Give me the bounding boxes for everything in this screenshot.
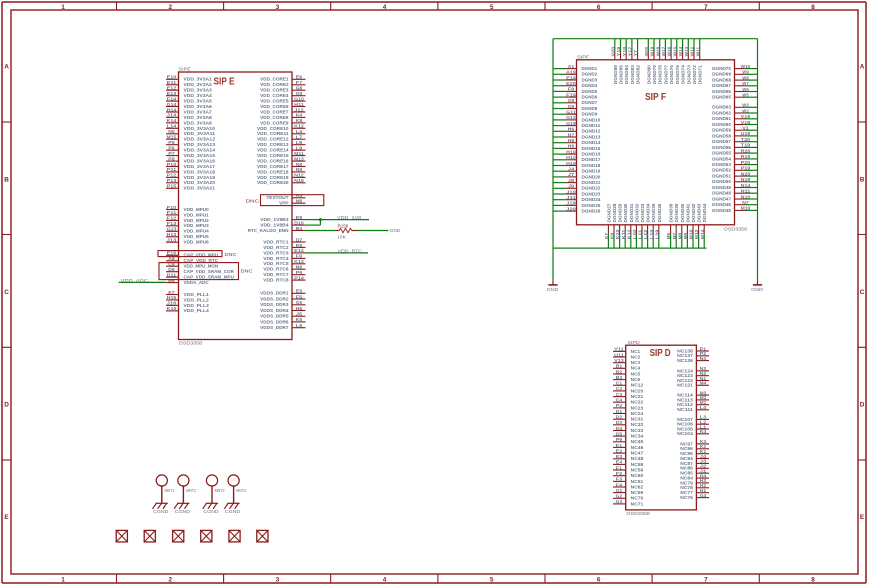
svg-text:VDD_CORE11: VDD_CORE11 bbox=[257, 131, 289, 136]
svg-text:VDD_3V3A5: VDD_3V3A5 bbox=[184, 99, 213, 104]
svg-text:C1: C1 bbox=[616, 381, 623, 386]
svg-text:DGND13: DGND13 bbox=[582, 134, 601, 139]
svg-text:DGND33: DGND33 bbox=[640, 203, 645, 222]
svg-text:G3: G3 bbox=[616, 499, 623, 504]
svg-text:VDD_3V3A18: VDD_3V3A18 bbox=[184, 169, 216, 174]
svg-text:W7: W7 bbox=[742, 81, 749, 86]
svg-text:J5: J5 bbox=[296, 312, 303, 317]
svg-text:V20: V20 bbox=[610, 46, 615, 56]
svg-text:T20: T20 bbox=[741, 137, 751, 142]
svg-text:M8: M8 bbox=[677, 232, 682, 239]
svg-text:VDD_MPU_MON: VDD_MPU_MON bbox=[184, 264, 219, 269]
svg-text:E11: E11 bbox=[167, 80, 177, 85]
svg-text:NC32: NC32 bbox=[631, 422, 644, 427]
svg-text:DGND41: DGND41 bbox=[685, 203, 690, 222]
svg-text:A3: A3 bbox=[296, 193, 303, 198]
svg-text:L14: L14 bbox=[167, 124, 177, 129]
svg-text:V18: V18 bbox=[741, 120, 751, 125]
svg-text:H6: H6 bbox=[568, 127, 575, 132]
svg-text:V11: V11 bbox=[614, 347, 624, 352]
svg-text:VDD_CORE8: VDD_CORE8 bbox=[260, 115, 289, 120]
svg-text:H19: H19 bbox=[566, 161, 576, 166]
svg-text:DGND2: DGND2 bbox=[582, 72, 598, 77]
svg-text:L13: L13 bbox=[649, 229, 654, 239]
svg-text:F10: F10 bbox=[167, 205, 177, 210]
svg-text:N15: N15 bbox=[294, 178, 304, 183]
svg-text:W19: W19 bbox=[650, 46, 655, 56]
svg-text:VDD_CORE17: VDD_CORE17 bbox=[257, 164, 289, 169]
svg-text:VDD_3V3A4: VDD_3V3A4 bbox=[184, 93, 213, 98]
svg-text:L11: L11 bbox=[638, 229, 643, 239]
svg-text:DGND4: DGND4 bbox=[582, 83, 598, 88]
svg-text:J20: J20 bbox=[566, 206, 577, 211]
svg-text:CGND: CGND bbox=[153, 509, 169, 514]
svg-text:G19: G19 bbox=[566, 121, 576, 126]
svg-text:N7: N7 bbox=[742, 200, 749, 205]
svg-text:DGND40: DGND40 bbox=[680, 203, 685, 222]
svg-text:VDD_3V3A19: VDD_3V3A19 bbox=[184, 175, 216, 180]
svg-text:DGND17: DGND17 bbox=[582, 157, 601, 162]
svg-text:M14: M14 bbox=[700, 229, 705, 239]
svg-text:DGND5: DGND5 bbox=[582, 89, 598, 94]
svg-text:VDDS_DDR3: VDDS_DDR3 bbox=[260, 302, 289, 307]
svg-text:D5: D5 bbox=[616, 431, 623, 436]
svg-text:VDD_3V3A17: VDD_3V3A17 bbox=[184, 164, 216, 169]
svg-text:5: 5 bbox=[490, 577, 494, 584]
svg-text:L4: L4 bbox=[700, 405, 707, 410]
svg-text:VDD_MPU5: VDD_MPU5 bbox=[184, 234, 210, 239]
svg-text:DGND58: DGND58 bbox=[712, 133, 731, 138]
svg-text:V13: V13 bbox=[614, 358, 624, 363]
svg-text:H8: H8 bbox=[568, 138, 575, 143]
svg-text:10K: 10K bbox=[337, 235, 347, 240]
svg-text:DGND21: DGND21 bbox=[582, 180, 601, 185]
svg-text:8: 8 bbox=[811, 4, 815, 11]
svg-text:MNT4: MNT4 bbox=[236, 488, 246, 493]
svg-text:K8: K8 bbox=[296, 118, 303, 123]
svg-text:M6: M6 bbox=[666, 232, 671, 239]
svg-text:NC104: NC104 bbox=[677, 431, 693, 436]
svg-text:H11: H11 bbox=[294, 102, 304, 107]
svg-text:G1: G1 bbox=[616, 488, 623, 493]
svg-text:H14: H14 bbox=[167, 107, 177, 112]
svg-text:DGND50: DGND50 bbox=[712, 179, 731, 184]
svg-text:VDD_3V3A15: VDD_3V3A15 bbox=[184, 153, 216, 158]
svg-text:VDD_CORE10: VDD_CORE10 bbox=[257, 126, 289, 131]
svg-text:2: 2 bbox=[169, 577, 173, 584]
svg-text:DGND56: DGND56 bbox=[712, 145, 731, 150]
svg-text:K4: K4 bbox=[700, 429, 707, 434]
svg-text:CGND: CGND bbox=[225, 509, 241, 514]
svg-text:NC58: NC58 bbox=[631, 462, 644, 467]
svg-text:K12: K12 bbox=[294, 124, 304, 129]
svg-text:M19: M19 bbox=[741, 206, 751, 211]
svg-text:DGND1: DGND1 bbox=[582, 66, 598, 71]
svg-text:NC1: NC1 bbox=[631, 349, 641, 354]
svg-text:VDD_CORE7: VDD_CORE7 bbox=[260, 109, 289, 114]
svg-text:N9: N9 bbox=[296, 167, 303, 172]
svg-text:E19: E19 bbox=[566, 75, 576, 80]
svg-text:DGND6: DGND6 bbox=[582, 95, 598, 100]
svg-text:VDD_CORE19: VDD_CORE19 bbox=[257, 175, 289, 180]
svg-text:G10: G10 bbox=[294, 96, 304, 101]
svg-text:K7: K7 bbox=[604, 232, 609, 239]
svg-text:E2: E2 bbox=[616, 448, 623, 453]
svg-text:NC121: NC121 bbox=[677, 383, 693, 388]
svg-text:D7: D7 bbox=[296, 237, 303, 242]
svg-text:VDD_3V3A11: VDD_3V3A11 bbox=[184, 131, 216, 136]
svg-text:G13: G13 bbox=[167, 227, 177, 232]
svg-text:P9: P9 bbox=[296, 270, 303, 275]
svg-text:VDD_CORE18: VDD_CORE18 bbox=[257, 169, 289, 174]
svg-text:DGND60: DGND60 bbox=[712, 122, 731, 127]
svg-text:DGND78: DGND78 bbox=[658, 65, 663, 84]
svg-text:6: 6 bbox=[597, 4, 601, 11]
svg-text:A: A bbox=[860, 64, 865, 71]
svg-text:VDD_RTC1: VDD_RTC1 bbox=[263, 239, 289, 244]
svg-text:F12: F12 bbox=[167, 216, 177, 221]
svg-text:VDD_CORE9: VDD_CORE9 bbox=[260, 120, 289, 125]
svg-text:DNC: DNC bbox=[225, 252, 238, 257]
svg-text:DGND88: DGND88 bbox=[613, 65, 618, 84]
svg-text:DGND30: DGND30 bbox=[623, 203, 628, 222]
svg-text:6: 6 bbox=[597, 577, 601, 584]
svg-text:DGND38: DGND38 bbox=[669, 203, 674, 222]
svg-text:M10: M10 bbox=[689, 229, 694, 239]
svg-text:VDD_1V8B4: VDD_1V8B4 bbox=[260, 223, 289, 228]
svg-text:J4: J4 bbox=[568, 167, 575, 172]
svg-text:DGND7: DGND7 bbox=[582, 100, 598, 105]
svg-text:DGND39: DGND39 bbox=[674, 203, 679, 222]
svg-text:CGND: CGND bbox=[203, 509, 219, 514]
svg-text:VDD_RTC5: VDD_RTC5 bbox=[263, 261, 289, 266]
svg-text:CAP_VDD_SRAM_MPU: CAP_VDD_SRAM_MPU bbox=[184, 275, 234, 280]
svg-text:H10: H10 bbox=[566, 149, 576, 154]
svg-text:G8: G8 bbox=[296, 86, 303, 91]
svg-text:U19: U19 bbox=[741, 131, 751, 136]
svg-text:MNT2: MNT2 bbox=[186, 488, 196, 493]
svg-text:VDD_3V3A7: VDD_3V3A7 bbox=[184, 109, 213, 114]
svg-text:NC31: NC31 bbox=[631, 417, 644, 422]
svg-text:VDD_CORE6: VDD_CORE6 bbox=[260, 104, 289, 109]
svg-text:K15: K15 bbox=[167, 306, 177, 311]
svg-text:MNT1: MNT1 bbox=[165, 488, 175, 493]
svg-text:DGND26: DGND26 bbox=[582, 209, 601, 214]
svg-text:VDD_MPU4: VDD_MPU4 bbox=[184, 229, 210, 234]
svg-text:VDD_3V3A21: VDD_3V3A21 bbox=[184, 186, 216, 191]
svg-text:VDD_MPU6: VDD_MPU6 bbox=[184, 240, 210, 245]
svg-text:G12: G12 bbox=[566, 115, 576, 120]
svg-text:VPP: VPP bbox=[279, 201, 288, 206]
svg-text:E15: E15 bbox=[167, 251, 177, 256]
svg-text:E9: E9 bbox=[296, 215, 303, 220]
svg-text:GND: GND bbox=[751, 287, 764, 292]
svg-text:J10: J10 bbox=[566, 189, 577, 194]
svg-text:VDD_3V3A8: VDD_3V3A8 bbox=[184, 115, 213, 120]
svg-text:SIPE: SIPE bbox=[179, 67, 191, 72]
svg-text:7: 7 bbox=[704, 4, 708, 11]
svg-text:L5: L5 bbox=[296, 323, 303, 328]
svg-text:D9: D9 bbox=[168, 267, 175, 272]
svg-text:J19: J19 bbox=[566, 201, 577, 206]
svg-text:M11: M11 bbox=[294, 151, 304, 156]
svg-text:E10: E10 bbox=[167, 75, 177, 80]
svg-text:G2: G2 bbox=[616, 494, 623, 499]
svg-text:F4: F4 bbox=[616, 482, 623, 487]
svg-text:W8: W8 bbox=[742, 75, 749, 80]
svg-text:E20: E20 bbox=[566, 81, 576, 86]
svg-text:NC60: NC60 bbox=[631, 473, 644, 478]
svg-text:7: 7 bbox=[704, 577, 708, 584]
svg-text:E6: E6 bbox=[296, 75, 303, 80]
svg-text:VDD_3V3A2: VDD_3V3A2 bbox=[184, 82, 213, 87]
svg-text:C: C bbox=[860, 289, 865, 296]
svg-text:NC3: NC3 bbox=[631, 360, 641, 365]
svg-text:P2: P2 bbox=[616, 403, 623, 408]
svg-text:DGND24: DGND24 bbox=[582, 197, 601, 202]
svg-text:DGND54: DGND54 bbox=[712, 156, 731, 161]
svg-text:C3: C3 bbox=[616, 392, 623, 397]
svg-text:VDD_MPU1: VDD_MPU1 bbox=[184, 212, 210, 217]
svg-text:NC24: NC24 bbox=[631, 411, 644, 416]
svg-text:L4: L4 bbox=[296, 129, 303, 134]
svg-text:K10: K10 bbox=[615, 229, 620, 239]
svg-text:VDD_CORE12: VDD_CORE12 bbox=[257, 137, 289, 142]
svg-text:VDD_CORE13: VDD_CORE13 bbox=[257, 142, 289, 147]
svg-text:E5: E5 bbox=[296, 289, 303, 294]
svg-text:W20: W20 bbox=[644, 46, 649, 56]
svg-text:NC23: NC23 bbox=[631, 405, 644, 410]
svg-text:VDD_CORE3: VDD_CORE3 bbox=[260, 88, 289, 93]
svg-text:VDDS_DDR4: VDDS_DDR4 bbox=[260, 308, 289, 313]
svg-text:K13: K13 bbox=[294, 259, 304, 264]
svg-text:K12: K12 bbox=[626, 229, 631, 239]
svg-text:VDD_3V3A10: VDD_3V3A10 bbox=[184, 126, 216, 131]
svg-text:K8: K8 bbox=[610, 232, 615, 239]
svg-text:DGND82: DGND82 bbox=[636, 65, 641, 84]
svg-text:DGND53: DGND53 bbox=[712, 162, 731, 167]
svg-text:SIPD: SIPD bbox=[627, 340, 640, 345]
svg-text:NC46: NC46 bbox=[631, 445, 644, 450]
svg-text:VDDS_DDR1: VDDS_DDR1 bbox=[260, 291, 289, 296]
svg-text:DGND59: DGND59 bbox=[712, 128, 731, 133]
svg-text:L12: L12 bbox=[643, 229, 648, 239]
svg-text:F19: F19 bbox=[566, 92, 576, 97]
svg-text:F7: F7 bbox=[296, 80, 303, 85]
svg-text:W2: W2 bbox=[742, 108, 749, 113]
svg-text:P11: P11 bbox=[167, 167, 177, 172]
svg-text:P8: P8 bbox=[168, 156, 175, 161]
svg-text:NC111: NC111 bbox=[677, 407, 693, 412]
svg-text:L7: L7 bbox=[296, 135, 303, 140]
svg-text:B4: B4 bbox=[296, 226, 303, 231]
svg-text:U11: U11 bbox=[614, 352, 624, 357]
svg-text:DGND22: DGND22 bbox=[582, 186, 601, 191]
svg-text:CGND: CGND bbox=[175, 509, 191, 514]
svg-text:DGND79: DGND79 bbox=[652, 65, 657, 84]
svg-text:DGND19: DGND19 bbox=[582, 169, 601, 174]
svg-text:J16: J16 bbox=[167, 301, 178, 306]
svg-text:DGND77: DGND77 bbox=[663, 65, 668, 84]
svg-text:VDDS_DDR6: VDDS_DDR6 bbox=[260, 319, 289, 324]
svg-text:VDD_3V3A13: VDD_3V3A13 bbox=[184, 142, 216, 147]
svg-text:B: B bbox=[860, 176, 865, 183]
svg-text:DGND35: DGND35 bbox=[651, 203, 656, 222]
svg-text:E12: E12 bbox=[167, 86, 177, 91]
svg-text:DGND28: DGND28 bbox=[612, 203, 617, 222]
svg-text:W12: W12 bbox=[690, 46, 695, 56]
svg-text:SIP E: SIP E bbox=[214, 77, 235, 88]
svg-text:N14: N14 bbox=[741, 183, 751, 188]
svg-text:DGND49: DGND49 bbox=[712, 185, 731, 190]
svg-text:VDD_MPU2: VDD_MPU2 bbox=[184, 218, 210, 223]
svg-text:VDD_CORE5: VDD_CORE5 bbox=[260, 99, 289, 104]
svg-text:NC76: NC76 bbox=[680, 495, 693, 500]
svg-text:NC12: NC12 bbox=[631, 383, 644, 388]
svg-text:CAP_VDD_SRAM_COR: CAP_VDD_SRAM_COR bbox=[184, 269, 235, 274]
svg-text:V1: V1 bbox=[742, 126, 749, 131]
svg-text:VDD_PLL1: VDD_PLL1 bbox=[184, 292, 210, 297]
svg-text:N4: N4 bbox=[700, 356, 707, 361]
svg-text:DGND68: DGND68 bbox=[712, 78, 731, 83]
svg-text:4: 4 bbox=[383, 577, 387, 584]
svg-text:VDD_RTC: VDD_RTC bbox=[338, 249, 363, 254]
svg-text:P15: P15 bbox=[167, 184, 177, 189]
svg-text:E: E bbox=[4, 514, 9, 521]
svg-text:DGND76: DGND76 bbox=[669, 65, 674, 84]
svg-text:J9: J9 bbox=[568, 184, 575, 189]
svg-text:DGND65: DGND65 bbox=[712, 95, 731, 100]
svg-text:VDD_3V3A16: VDD_3V3A16 bbox=[184, 159, 216, 164]
svg-text:VDDA_ADC: VDDA_ADC bbox=[184, 280, 210, 285]
svg-text:M7: M7 bbox=[672, 232, 677, 239]
svg-text:VDDS_DDR7: VDDS_DDR7 bbox=[260, 325, 289, 330]
svg-text:VDD_RTC7: VDD_RTC7 bbox=[263, 272, 289, 277]
svg-text:NC6: NC6 bbox=[631, 377, 641, 382]
svg-text:G4: G4 bbox=[700, 493, 707, 498]
svg-text:D11: D11 bbox=[167, 272, 177, 277]
svg-text:H13: H13 bbox=[167, 232, 177, 237]
svg-text:4: 4 bbox=[383, 4, 387, 11]
svg-text:W15: W15 bbox=[672, 46, 677, 56]
svg-text:VDD_PLL2: VDD_PLL2 bbox=[184, 297, 210, 302]
svg-text:W5: W5 bbox=[742, 93, 749, 98]
svg-text:DGND44: DGND44 bbox=[702, 203, 707, 222]
svg-text:DGND29: DGND29 bbox=[618, 203, 623, 222]
svg-text:E7: E7 bbox=[168, 290, 175, 295]
svg-text:H9: H9 bbox=[568, 144, 575, 149]
svg-text:H5: H5 bbox=[296, 306, 303, 311]
svg-text:NC48: NC48 bbox=[631, 456, 644, 461]
svg-text:P19: P19 bbox=[741, 166, 751, 171]
svg-text:W3: W3 bbox=[742, 103, 749, 108]
svg-text:Y18: Y18 bbox=[622, 46, 627, 56]
svg-text:VDD_PLL3: VDD_PLL3 bbox=[184, 303, 210, 308]
svg-text:NC22: NC22 bbox=[631, 400, 644, 405]
svg-text:DGND75: DGND75 bbox=[675, 65, 680, 84]
svg-text:NC47: NC47 bbox=[631, 451, 644, 456]
svg-text:DGND14: DGND14 bbox=[582, 140, 601, 145]
svg-text:NC34: NC34 bbox=[631, 434, 644, 439]
svg-text:P6: P6 bbox=[168, 146, 175, 151]
svg-text:TESTOUT: TESTOUT bbox=[266, 195, 288, 200]
svg-text:3: 3 bbox=[276, 4, 280, 11]
svg-text:P20: P20 bbox=[741, 160, 751, 165]
svg-text:1: 1 bbox=[61, 577, 65, 584]
svg-text:E1: E1 bbox=[616, 443, 623, 448]
svg-text:E3: E3 bbox=[616, 454, 623, 459]
svg-text:RTC_KALDO_ENN: RTC_KALDO_ENN bbox=[248, 228, 289, 233]
svg-text:DGND25: DGND25 bbox=[582, 203, 601, 208]
svg-text:G9: G9 bbox=[296, 91, 303, 96]
svg-text:W9: W9 bbox=[742, 70, 749, 75]
svg-text:D3: D3 bbox=[616, 420, 623, 425]
svg-text:DGND20: DGND20 bbox=[582, 174, 601, 179]
svg-text:A: A bbox=[4, 64, 9, 71]
svg-text:DGND80: DGND80 bbox=[646, 65, 651, 84]
svg-text:D1: D1 bbox=[616, 409, 623, 414]
svg-text:VDD_3V3A20: VDD_3V3A20 bbox=[184, 180, 216, 185]
svg-text:A1: A1 bbox=[568, 64, 575, 69]
svg-text:NC45: NC45 bbox=[631, 439, 644, 444]
svg-text:VDD_RTC3: VDD_RTC3 bbox=[263, 250, 289, 255]
svg-text:J13: J13 bbox=[167, 238, 178, 243]
svg-text:Y7: Y7 bbox=[633, 49, 638, 56]
svg-text:OSD3358: OSD3358 bbox=[724, 227, 748, 232]
svg-text:W13: W13 bbox=[684, 46, 689, 56]
svg-text:P7: P7 bbox=[168, 151, 175, 156]
svg-text:E: E bbox=[860, 514, 865, 521]
svg-text:GND: GND bbox=[547, 287, 560, 292]
svg-text:DGND11: DGND11 bbox=[582, 123, 601, 128]
svg-text:L10: L10 bbox=[632, 229, 637, 239]
svg-text:D4: D4 bbox=[616, 426, 623, 431]
svg-text:G9: G9 bbox=[568, 104, 575, 109]
svg-text:DGND47: DGND47 bbox=[712, 196, 731, 201]
svg-text:K14: K14 bbox=[167, 118, 177, 123]
svg-text:NC136: NC136 bbox=[677, 358, 693, 363]
svg-text:DNC: DNC bbox=[246, 198, 260, 203]
svg-text:H12: H12 bbox=[566, 155, 576, 160]
svg-text:N20: N20 bbox=[741, 171, 751, 176]
svg-text:E4: E4 bbox=[616, 460, 623, 465]
svg-text:R20: R20 bbox=[741, 148, 751, 153]
svg-text:VDD_ADC: VDD_ADC bbox=[121, 278, 149, 283]
svg-text:E14: E14 bbox=[294, 248, 304, 253]
svg-text:J11: J11 bbox=[566, 195, 577, 200]
svg-text:B8: B8 bbox=[168, 278, 175, 283]
svg-text:DGND34: DGND34 bbox=[646, 203, 651, 222]
svg-text:J7: J7 bbox=[568, 172, 575, 177]
svg-text:P5: P5 bbox=[168, 140, 175, 145]
svg-text:VDD_MPU0: VDD_MPU0 bbox=[184, 207, 210, 212]
svg-text:H7: H7 bbox=[568, 132, 575, 137]
svg-text:VDD_RTC6: VDD_RTC6 bbox=[263, 267, 289, 272]
svg-text:VDD_CORE14: VDD_CORE14 bbox=[257, 148, 289, 153]
svg-text:VDD_MPU3: VDD_MPU3 bbox=[184, 223, 210, 228]
svg-text:DGND18: DGND18 bbox=[582, 163, 601, 168]
svg-text:NC71: NC71 bbox=[631, 501, 644, 506]
svg-text:V19: V19 bbox=[741, 114, 751, 119]
svg-text:DNC: DNC bbox=[241, 268, 254, 273]
svg-text:VDD_CORE15: VDD_CORE15 bbox=[257, 153, 289, 158]
svg-text:VDD_1V8B3: VDD_1V8B3 bbox=[260, 217, 289, 222]
svg-text:M13: M13 bbox=[294, 156, 304, 161]
svg-text:J14: J14 bbox=[167, 113, 178, 118]
svg-text:K5: K5 bbox=[296, 317, 303, 322]
svg-text:N11: N11 bbox=[741, 189, 751, 194]
svg-text:P13: P13 bbox=[167, 178, 177, 183]
